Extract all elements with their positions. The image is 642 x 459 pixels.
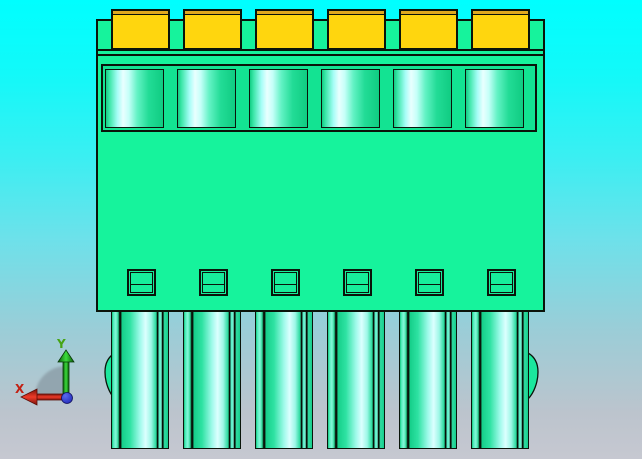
- x-axis-label: X: [15, 382, 25, 396]
- release-slot-inner-frame: [418, 272, 441, 293]
- side-latch-right: [528, 352, 541, 400]
- release-slot: [343, 269, 372, 296]
- release-slot-divider: [419, 284, 440, 285]
- wire-entry-band: [101, 64, 537, 132]
- cad-viewport[interactable]: Y X: [0, 0, 642, 459]
- y-axis-arrowhead: [58, 350, 74, 362]
- screw-terminal-top-face: [401, 11, 456, 15]
- wire-entry-cavity: [249, 69, 308, 128]
- screw-terminal-top-face: [329, 11, 384, 15]
- screw-terminal: [111, 9, 170, 50]
- release-slot-inner-frame: [274, 272, 297, 293]
- screw-terminal-top-face: [473, 11, 528, 15]
- release-slot: [271, 269, 300, 296]
- screw-terminal: [471, 9, 530, 50]
- wire-entry-cavity: [177, 69, 236, 128]
- connector-pin-leg: [111, 311, 169, 449]
- y-axis-label: Y: [56, 337, 66, 351]
- origin-dot: [62, 393, 73, 404]
- screw-terminal: [183, 9, 242, 50]
- release-slot-divider: [203, 284, 224, 285]
- release-slot-divider: [347, 284, 368, 285]
- release-slot-inner-frame: [202, 272, 225, 293]
- wire-entry-cavity: [465, 69, 524, 128]
- release-slot-divider: [131, 284, 152, 285]
- release-slot-inner-frame: [346, 272, 369, 293]
- release-slot-divider: [491, 284, 512, 285]
- release-slot: [127, 269, 156, 296]
- connector-body: [96, 19, 545, 312]
- cavity-row: [103, 66, 535, 130]
- screw-terminal: [399, 9, 458, 50]
- orientation-triad: Y X: [6, 331, 98, 415]
- side-latch-left: [102, 352, 115, 400]
- wire-entry-cavity: [393, 69, 452, 128]
- release-slot-inner-frame: [130, 272, 153, 293]
- connector-pin-leg: [471, 311, 529, 449]
- release-slot: [415, 269, 444, 296]
- body-ledge-line-upper: [98, 49, 543, 51]
- screw-terminal-top-face: [113, 11, 168, 15]
- connector-pin-leg: [183, 311, 241, 449]
- screw-terminal: [327, 9, 386, 50]
- release-slot-divider: [275, 284, 296, 285]
- screw-terminal-top-face: [185, 11, 240, 15]
- wire-entry-cavity: [105, 69, 164, 128]
- release-slot: [199, 269, 228, 296]
- screw-terminal-top-face: [257, 11, 312, 15]
- release-slot-inner-frame: [490, 272, 513, 293]
- body-ledge-line-lower: [98, 54, 543, 56]
- connector-pin-leg: [255, 311, 313, 449]
- wire-entry-cavity: [321, 69, 380, 128]
- screw-terminal: [255, 9, 314, 50]
- connector-pin-leg: [399, 311, 457, 449]
- connector-pin-leg: [327, 311, 385, 449]
- triad-shadow-sector: [35, 366, 66, 397]
- release-slot: [487, 269, 516, 296]
